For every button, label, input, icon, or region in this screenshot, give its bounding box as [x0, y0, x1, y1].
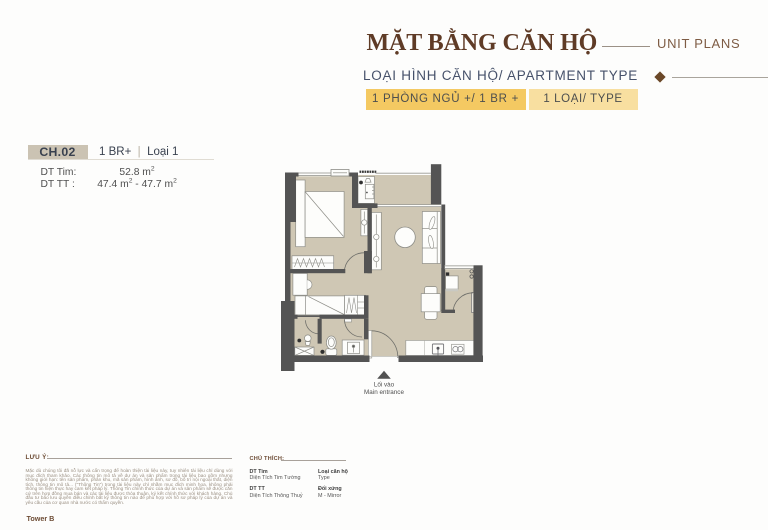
svg-text:Lối vào: Lối vào — [374, 379, 395, 388]
svg-text:Main entrance: Main entrance — [364, 389, 404, 396]
